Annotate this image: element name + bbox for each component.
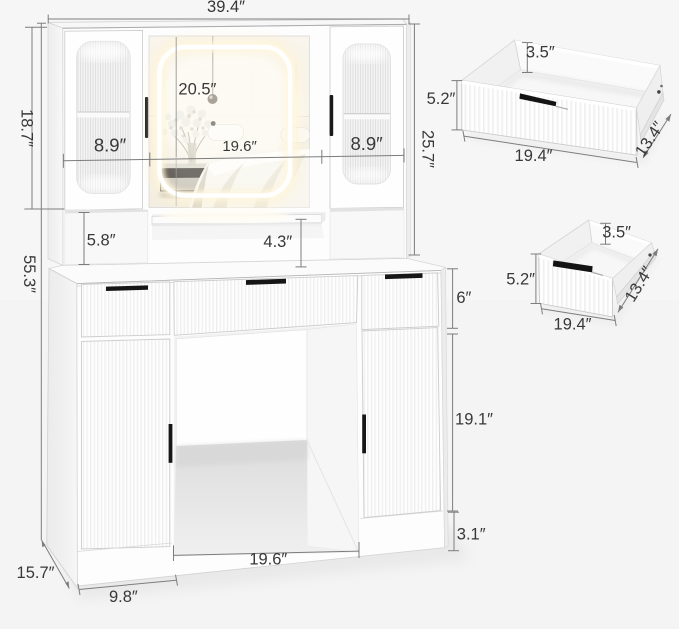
svg-text:19.6″: 19.6″ [222,138,257,155]
svg-text:6″: 6″ [456,289,471,307]
svg-text:15.7″: 15.7″ [17,564,55,582]
svg-text:19.6″: 19.6″ [249,551,287,569]
svg-text:3.5″: 3.5″ [602,224,631,242]
svg-text:19.4″: 19.4″ [554,316,592,334]
svg-text:8.9″: 8.9″ [94,135,127,156]
svg-text:5.2″: 5.2″ [506,271,535,289]
svg-text:19.4″: 19.4″ [515,147,553,165]
svg-text:4.3″: 4.3″ [263,233,292,251]
svg-text:25.7″: 25.7″ [419,130,437,168]
svg-text:3.5″: 3.5″ [526,43,555,61]
svg-text:3.1″: 3.1″ [457,526,486,544]
svg-text:8.9″: 8.9″ [350,133,383,154]
svg-text:5.2″: 5.2″ [427,90,456,108]
svg-text:55.3″: 55.3″ [20,255,38,293]
svg-text:39.4″: 39.4″ [207,0,245,16]
svg-text:9.8″: 9.8″ [109,588,138,606]
svg-text:18.7″: 18.7″ [18,109,36,147]
svg-text:19.1″: 19.1″ [455,411,493,429]
svg-text:20.5″: 20.5″ [178,81,216,99]
svg-text:5.8″: 5.8″ [87,231,116,249]
